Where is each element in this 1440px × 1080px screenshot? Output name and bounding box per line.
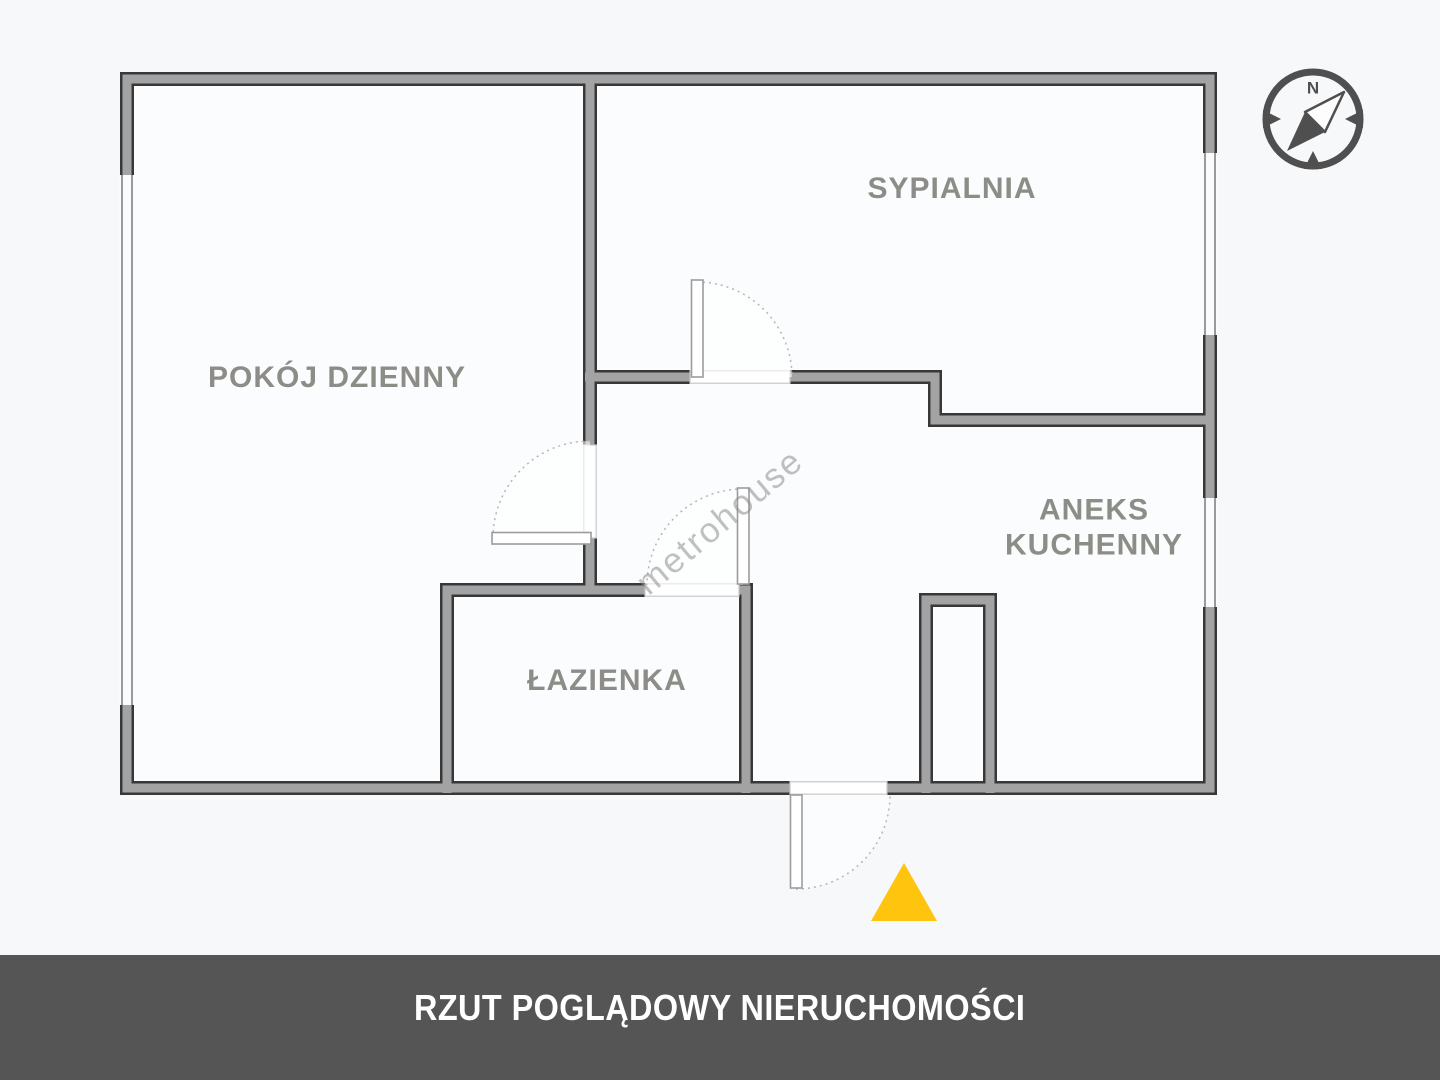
room-label-sypialnia: SYPIALNIA: [867, 172, 1036, 207]
room-label-aneks-kuchenny: ANEKS KUCHENNY: [984, 494, 1204, 563]
footer-bar: RZUT POGLĄDOWY NIERUCHOMOŚCI: [0, 955, 1440, 1080]
compass-icon: N: [1263, 72, 1363, 169]
floorplan-drawing: N: [0, 0, 1440, 955]
livingroom-door-leaf: [492, 533, 591, 545]
room-label-lazienka: ŁAZIENKA: [527, 664, 687, 699]
footer-title: RZUT POGLĄDOWY NIERUCHOMOŚCI: [414, 987, 1025, 1029]
entrance-marker-triangle: [871, 863, 937, 921]
entrance-door-leaf: [791, 795, 803, 888]
compass-tick-east: [1345, 110, 1363, 128]
compass-tick-south: [1304, 151, 1322, 169]
floorplan-canvas: N SYPIALNIA POKÓJ DZIENNY ANEKS KUCHENNY…: [0, 0, 1440, 1080]
room-label-pokoj-dzienny: POKÓJ DZIENNY: [208, 361, 466, 396]
bedroom-door-leaf: [692, 280, 704, 377]
compass-tick-west: [1263, 110, 1281, 128]
compass-north-label: N: [1307, 79, 1319, 98]
entrance-door-threshold: [790, 782, 887, 794]
